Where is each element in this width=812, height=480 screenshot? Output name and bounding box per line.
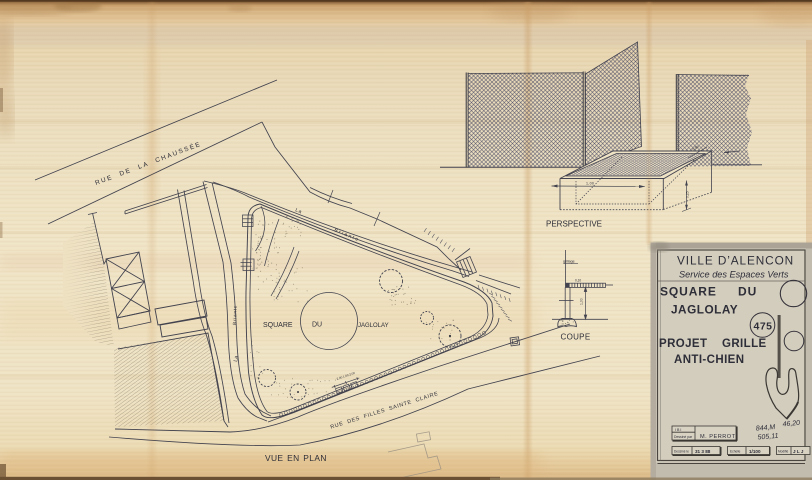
svg-text:Modifié: Modifié	[778, 450, 789, 454]
svg-text:1/100: 1/100	[749, 449, 761, 454]
svg-text:JAGLOLAY: JAGLOLAY	[358, 323, 389, 329]
svg-text:PERSPECTIVE: PERSPECTIVE	[546, 220, 602, 229]
svg-text:GRILLE: GRILLE	[722, 338, 767, 350]
svg-text:SQUARE: SQUARE	[263, 322, 293, 329]
svg-text:0,10: 0,10	[575, 279, 581, 283]
svg-text:grillage: grillage	[563, 259, 575, 263]
svg-text:Dessiné par: Dessiné par	[674, 435, 693, 439]
svg-text:COUPE: COUPE	[561, 333, 591, 342]
svg-text:PROJET: PROJET	[659, 338, 707, 350]
svg-text:VUE EN PLAN: VUE EN PLAN	[265, 453, 327, 463]
svg-text:DU: DU	[738, 285, 757, 299]
svg-text:ANTI-CHIEN: ANTI-CHIEN	[674, 354, 744, 366]
svg-text:31 3 88: 31 3 88	[695, 449, 711, 454]
svg-text:La: La	[233, 355, 240, 362]
svg-text:I B I: I B I	[675, 428, 681, 432]
svg-text:M. PERROT: M. PERROT	[700, 434, 736, 440]
svg-text:JAGLOLAY: JAGLOLAY	[671, 303, 738, 317]
svg-text:0,25: 0,25	[686, 191, 690, 198]
svg-text:VILLE D’ALENCON: VILLE D’ALENCON	[677, 254, 794, 268]
svg-text:Dessiné le: Dessiné le	[674, 450, 689, 454]
svg-text:Briante: Briante	[232, 305, 238, 325]
svg-text:1,00: 1,00	[586, 182, 594, 186]
svg-text:1,00: 1,00	[580, 298, 584, 305]
svg-text:Echelle: Echelle	[730, 450, 741, 454]
svg-text:475: 475	[754, 321, 773, 333]
svg-text:J L J: J L J	[793, 449, 804, 454]
svg-text:Service des Espaces Verts: Service des Espaces Verts	[679, 270, 789, 280]
svg-text:DU: DU	[312, 322, 322, 329]
svg-text:SQUARE: SQUARE	[660, 285, 717, 299]
